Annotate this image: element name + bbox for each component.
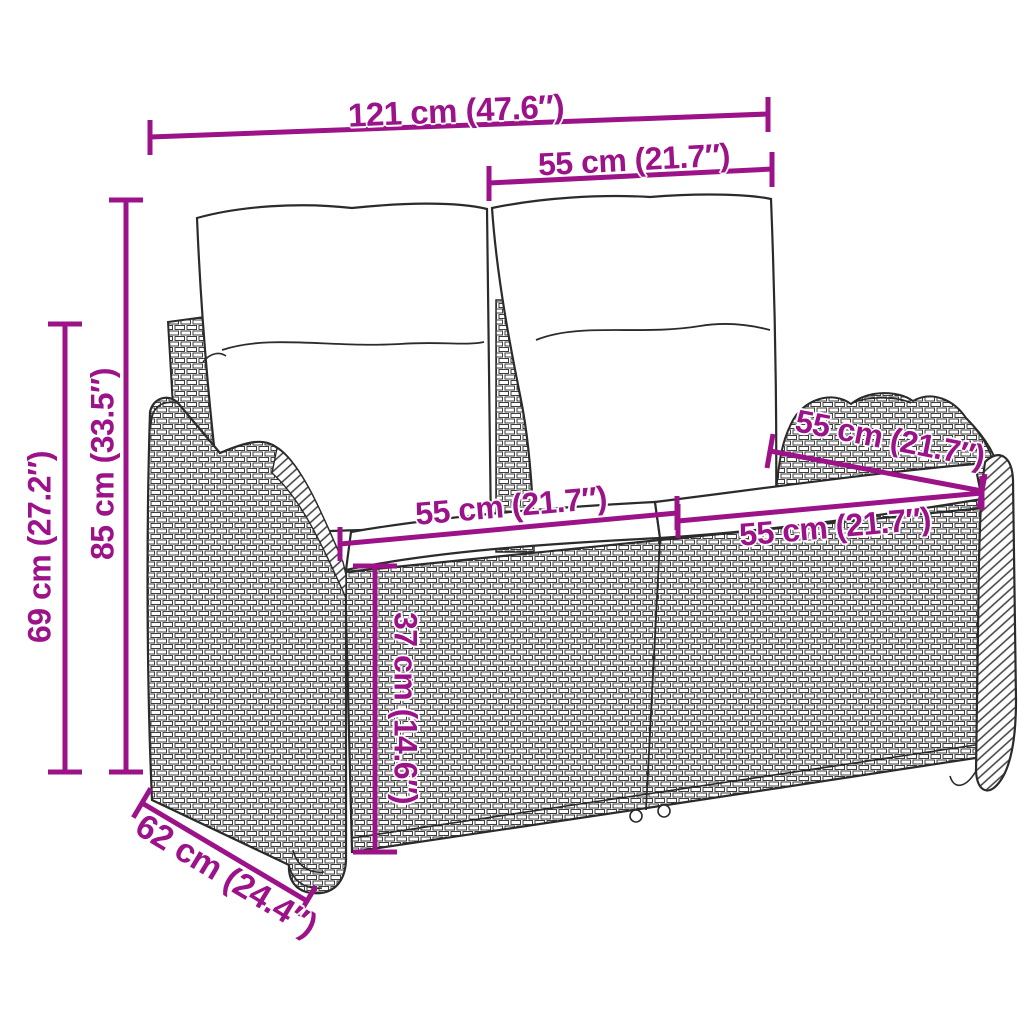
dim-seat-height-label: 37 cm (14.6″) bbox=[387, 612, 424, 804]
bench-drawing bbox=[148, 195, 1016, 894]
base-foot-left bbox=[630, 810, 642, 822]
dim-armrest-height-label: 69 cm (27.2″) bbox=[22, 451, 59, 643]
base-front bbox=[345, 508, 983, 852]
base-foot-right bbox=[658, 805, 670, 817]
dimension-diagram: 121 cm (47.6″) 55 cm (21.7″) 85 cm (33.5… bbox=[0, 0, 1024, 1024]
dim-total-height-label: 85 cm (33.5″) bbox=[85, 368, 122, 560]
